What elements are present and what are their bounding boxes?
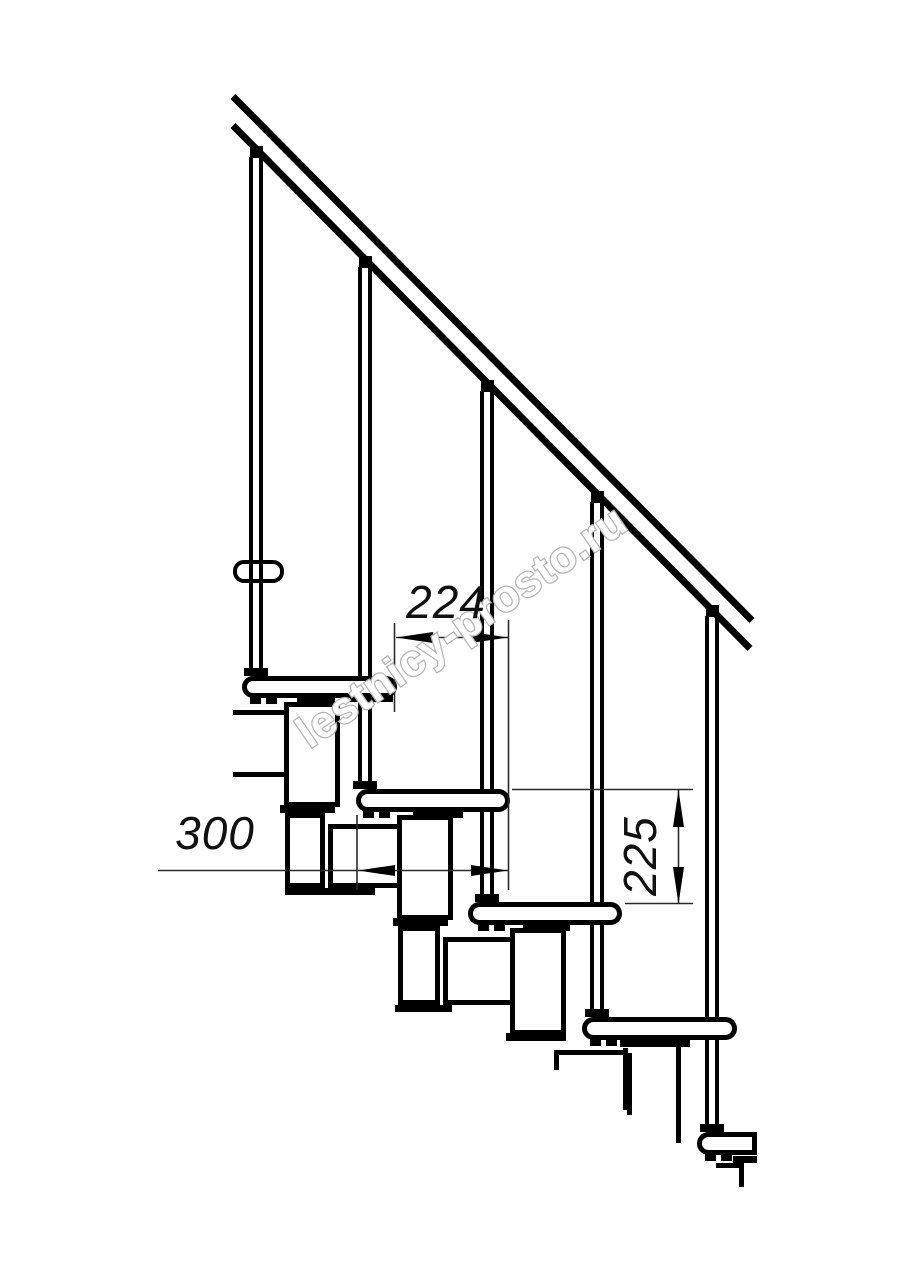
dim-300-arrow-left bbox=[358, 865, 395, 876]
dim-300-arrow-right bbox=[471, 865, 508, 876]
dim-225-label: 225 bbox=[617, 816, 663, 896]
staircase-drawing-canvas: lestnicy-prosto.ru 224 300 225 bbox=[0, 0, 914, 1280]
dim-224-label: 224 bbox=[406, 579, 486, 625]
dim-225-arrow-up bbox=[673, 790, 684, 827]
dim-300-label: 300 bbox=[175, 810, 255, 856]
dim-225-arrow-down bbox=[673, 867, 684, 904]
